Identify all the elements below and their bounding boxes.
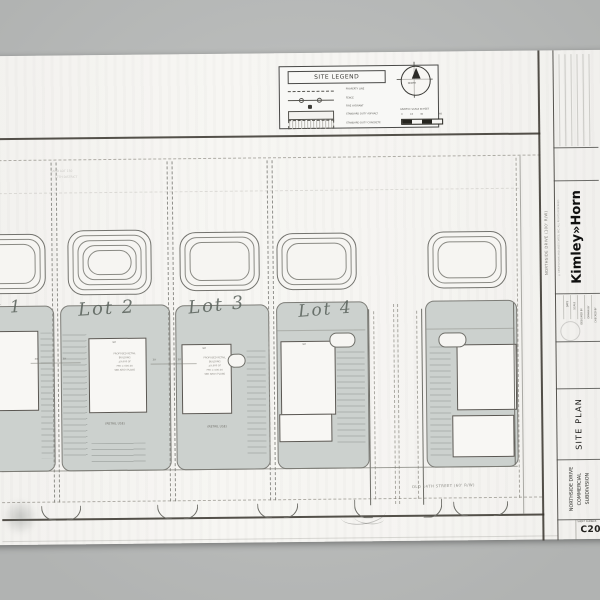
- lot4-service-pad: [279, 414, 332, 443]
- kimley-horn-logo: Kimley»Horn: [569, 190, 585, 284]
- compass-north-label: NORTH: [408, 82, 416, 85]
- scale-tick-30: 30: [420, 113, 423, 116]
- lot5-building-pad: [456, 344, 517, 411]
- setback-dim: 30': [35, 358, 39, 361]
- landscape-island: [276, 232, 357, 290]
- note-line: SEE ARCH PLANS: [187, 372, 243, 377]
- lot2-building-pad: [88, 338, 147, 414]
- legend-label-property-line: PROPERTY LINE: [346, 87, 365, 90]
- info-field-designed: DESIGNED BY: [580, 308, 583, 324]
- lot2-use-caption: (RETAIL USE): [105, 422, 125, 426]
- legend-hydrant-icon: [308, 105, 312, 109]
- landscape-island: [0, 234, 46, 295]
- landscape-island: [179, 231, 260, 291]
- legend-fence-post-icon: [317, 98, 322, 103]
- parking-stalls-hatch: [247, 350, 267, 454]
- info-field-scale: SCALE: [573, 302, 576, 310]
- legend-property-line-symbol: [288, 91, 334, 92]
- pe-seal-mark: [560, 321, 580, 341]
- legend-label-fence: FENCE: [346, 96, 354, 99]
- scale-tick-0: 0: [401, 113, 403, 116]
- legend-concrete-swatch: [288, 120, 334, 129]
- northside-drive-label: NORTHSIDE DRIVE (100' R/W): [544, 211, 549, 275]
- lot3-building-notes: PROPOSED RETAIL BUILDING ±9,600 SF FFE =…: [187, 356, 243, 377]
- setback-dim: 30': [153, 359, 157, 362]
- sheet-number-label: SHEET NUMBER: [577, 520, 596, 523]
- setback-dim: 30': [63, 357, 67, 360]
- lot1-handwritten-label: Lot 1: [0, 297, 23, 319]
- parking-stalls-hatch: [62, 334, 87, 456]
- north-arrow-compass: NORTH: [397, 62, 433, 98]
- project-name-line3: SUBDIVISION: [585, 473, 591, 505]
- parking-stalls-hatch: [337, 351, 366, 443]
- site-legend-title: SITE LEGEND: [288, 70, 386, 84]
- parking-stalls-hatch: [429, 346, 451, 456]
- legend-fence-symbol: [288, 100, 334, 101]
- lot2-building-notes: PROPOSED RETAIL BUILDING ±9,600 SF FFE =…: [97, 352, 153, 373]
- legend-label-hydrant: FIRE HYDRANT: [346, 104, 364, 107]
- scale-tick-15: 15: [410, 113, 413, 116]
- lot1-building-pad: [0, 331, 39, 412]
- legend-fence-post-icon: [299, 98, 304, 103]
- sheet-title: SITE PLAN: [574, 398, 584, 450]
- project-name-line1: NORTHSIDE DRIVE: [568, 467, 574, 511]
- landscape-island: [427, 231, 507, 289]
- scan-smudge: [2, 499, 38, 535]
- legend-label-asphalt: STANDARD DUTY ASPHALT: [346, 112, 378, 115]
- curb-island: [438, 332, 466, 347]
- lot3-building-pad: [181, 344, 232, 415]
- legend-label-concrete: STANDARD DUTY CONCRETE: [346, 121, 380, 124]
- lot3-use-caption: (RETAIL USE): [207, 425, 227, 429]
- parcel-note-line2: 17TH DISTRICT: [55, 175, 78, 179]
- curb-island: [329, 332, 355, 347]
- lot4-building-width-dim: 90': [302, 343, 306, 346]
- lot2-building-width-dim: 90': [112, 341, 116, 344]
- lot3-building-width-dim: 90': [202, 347, 206, 350]
- sheet-number: C20: [580, 525, 600, 535]
- lot4-building-pad: [280, 341, 336, 416]
- sheet-title-wrap: SITE PLAN: [556, 389, 600, 459]
- scale-tick-60: 60: [439, 113, 442, 116]
- info-field-drawn: DRAWN BY: [587, 306, 590, 319]
- lot5-service-pad: [452, 415, 514, 458]
- setback-dim: 30': [178, 358, 182, 361]
- scanned-site-plan-sheet: LAND LOT 150 17TH DISTRICT SITE LEGEND P…: [0, 0, 600, 600]
- graphic-scale-bar: [401, 118, 443, 124]
- parking-stalls-hatch: [91, 443, 145, 466]
- note-line: SEE ARCH PLANS: [97, 368, 153, 373]
- landscape-island: [67, 230, 152, 296]
- copyright-text: © KIMLEY-HORN AND ASSOCIATES, INC. ALL R…: [557, 200, 561, 277]
- legend-asphalt-swatch: [288, 111, 334, 120]
- lot2-handwritten-label: Lot 2: [77, 296, 135, 321]
- info-field-checked: CHECKED BY: [594, 307, 597, 322]
- project-name-line2: COMMERCIAL: [577, 473, 583, 505]
- project-name-wrap: NORTHSIDE DRIVE COMMERCIAL SUBDIVISION: [557, 460, 600, 518]
- graphic-scale-caption: GRAPHIC SCALE IN FEET: [400, 108, 429, 111]
- copyright-wrap: © KIMLEY-HORN AND ASSOCIATES, INC. ALL R…: [553, 183, 564, 293]
- tilted-scan-wrapper: LAND LOT 150 17TH DISTRICT SITE LEGEND P…: [0, 0, 600, 600]
- info-field-date: DATE: [566, 301, 569, 307]
